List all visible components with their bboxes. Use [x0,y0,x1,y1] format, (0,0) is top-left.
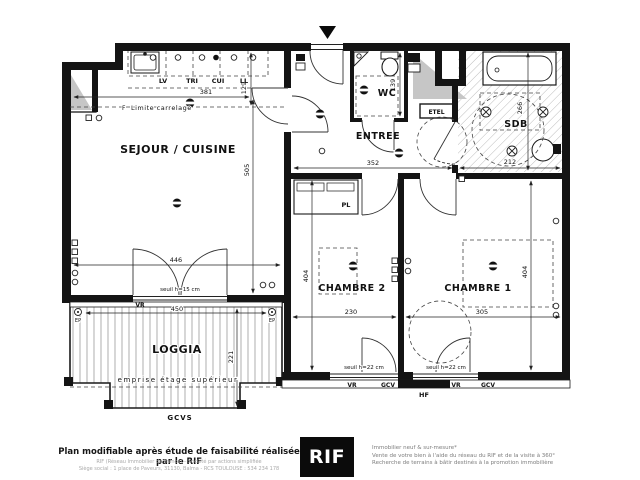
door-sejour-entree [252,88,328,132]
floor-plan-page: 381 129 505 352 139 266 212 404 404 230 … [0,0,640,480]
label-vr-ch2: VR [347,382,357,389]
dim-352: 352 [367,159,379,167]
label-hf: HF [419,391,429,399]
label-sejour-cuisine: SEJOUR / CUISINE [120,143,236,156]
dim-212: 212 [504,158,516,166]
door-chambre2 [362,179,398,215]
label-gcvs: GCVS [167,414,192,422]
label-cui: CUI [212,77,224,85]
footer-services-line3: Recherche de terrains à bâtir destinés à… [372,460,632,468]
toilet [381,52,398,76]
footer-services: Immobilier neuf & sur-mesure* Vente de v… [372,445,632,468]
label-chambre2: CHAMBRE 2 [318,283,385,294]
label-loggia: LOGGIA [152,343,202,356]
dim-221: 221 [227,351,235,363]
floor-plan-svg: 381 129 505 352 139 266 212 404 404 230 … [0,0,640,432]
footer-legal: RIF (Réseau Immobilier de France) – Soci… [55,459,303,472]
dim-446: 446 [170,256,182,264]
label-entree: ENTREE [356,131,400,142]
dim-450: 450 [171,305,183,313]
dim-381: 381 [200,88,212,96]
label-f-mark: F [122,105,126,112]
label-etel: ETEL [428,109,444,116]
label-pl: PL [342,201,351,209]
label-emprise: emprise étage supérieur [118,376,239,384]
rif-logo: RIF [300,437,354,477]
label-vr-ch1: VR [451,382,461,389]
dim-505: 505 [243,164,251,176]
label-chambre1: CHAMBRE 1 [444,283,511,294]
corner-shade-cabinet [68,70,92,110]
label-sdb: SDB [504,119,527,130]
label-ep-left: EP [75,318,81,324]
dim-404-ch1: 404 [521,266,529,278]
dim-305: 305 [476,308,488,316]
label-tri: TRI [186,77,198,85]
dim-230: 230 [345,308,357,316]
kitchen-labels: LV TRI CUI LL [159,77,248,85]
entrance-door [310,26,343,84]
loggia-floor-hatch [72,307,280,408]
label-seuil-22-ch2: seuil h=22 cm [344,365,384,371]
door-chambre1 [420,179,456,215]
label-gcv-ch1: GCV [481,382,495,389]
label-ep-right: EP [269,318,275,324]
label-wc: WC [378,88,396,99]
label-gcv-ch2: GCV [381,382,395,389]
corner-basin [354,52,368,66]
label-seuil-15: seuil h=15 cm [160,287,200,293]
label-seuil-22-ch1: seuil h=22 cm [426,365,466,371]
label-vr-sejour: VR [135,302,145,309]
bathtub [483,52,556,85]
label-limite-carrelage: Limite carrelage [131,104,192,112]
label-ll: LL [240,77,248,85]
label-lv: LV [159,77,167,85]
dim-404-ch2: 404 [302,270,310,282]
footer-services-line1: Immobilier neuf & sur-mesure* [372,445,632,453]
door-sdb [434,122,455,164]
dim-266: 266 [516,102,524,114]
footer-legal-line2: Siège social : 1 place de Paveurs, 31130… [55,466,303,473]
